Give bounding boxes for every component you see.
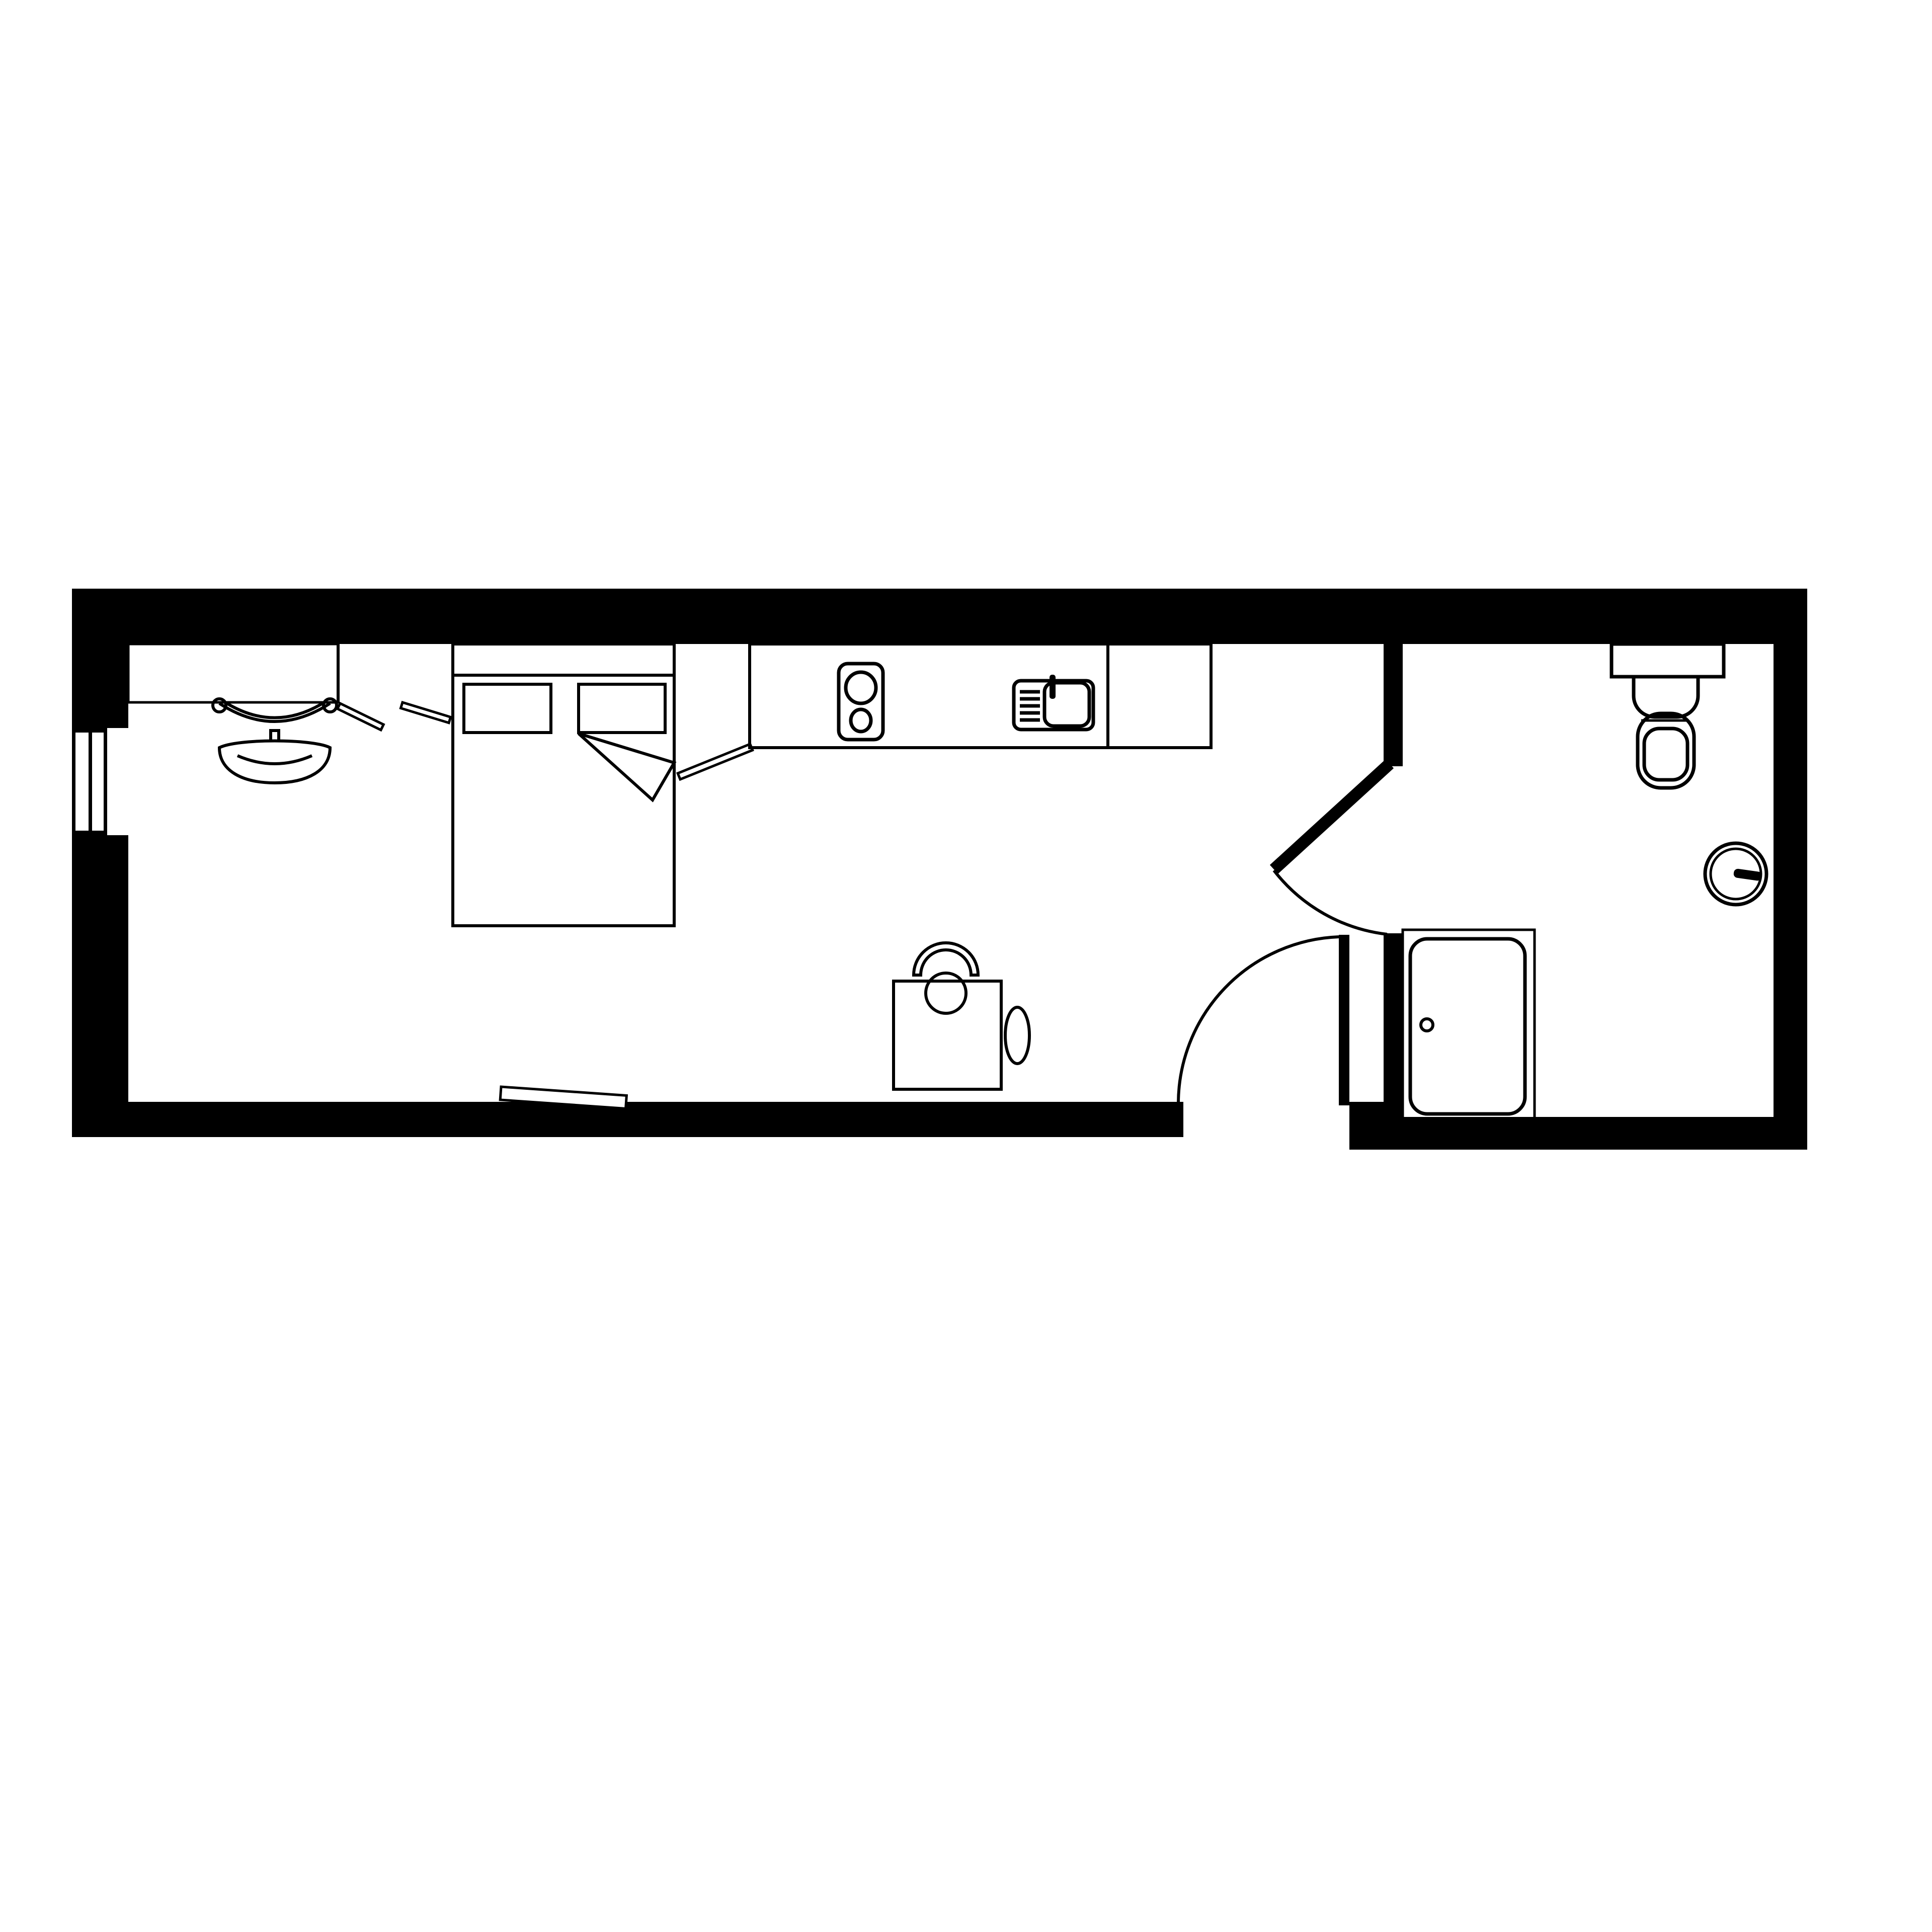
entrance-door: [1178, 935, 1349, 1105]
north-wall: [72, 589, 1807, 644]
hob-burner-small: [851, 709, 871, 732]
hob-burner-large: [846, 672, 876, 703]
entrance-door-swing-arc: [1178, 937, 1339, 1103]
bathroom-door-leaf: [1274, 764, 1390, 869]
window-frame-mid: [89, 728, 92, 835]
dining-chair-seat: [926, 973, 966, 1013]
window-frame-outer: [72, 728, 75, 835]
entrance-door-leaf: [1339, 935, 1349, 1105]
window-frame-inner: [104, 728, 107, 835]
west-wall-lower: [72, 835, 128, 1137]
dining-set: [894, 943, 1029, 1089]
double-bed: [453, 644, 674, 926]
bathroom-fixtures: [1403, 644, 1766, 1121]
desk: [128, 644, 338, 702]
floor-plan-canvas: [0, 0, 1932, 1932]
east-wall: [1774, 589, 1807, 1150]
vestibule-wall: [1384, 933, 1403, 1150]
toilet-base: [1634, 677, 1698, 717]
wall-clock: [1705, 843, 1766, 905]
kitchen: [750, 644, 1211, 748]
bathroom-door-swing-arc: [1274, 870, 1387, 934]
sink-tap: [1050, 675, 1056, 699]
shower-tray: [1410, 939, 1525, 1114]
wardrobe-door-left: [338, 703, 384, 730]
cabinet-flap: [678, 744, 753, 779]
west-window: [72, 728, 107, 835]
dining-chair-back: [914, 943, 978, 975]
desk-chair: [213, 699, 337, 783]
walls: [72, 589, 1807, 1150]
pillow-left: [464, 684, 551, 733]
shower-enclosure: [1403, 930, 1535, 1121]
toilet: [1612, 644, 1724, 788]
door-stub-wall: [1384, 644, 1403, 766]
wardrobe-door-right: [400, 702, 450, 723]
wardrobe: [338, 644, 451, 730]
shower-drain: [1421, 1019, 1433, 1031]
west-wall-upper: [72, 589, 128, 728]
desk-chair-seat: [219, 741, 330, 783]
toilet-bowl-inner: [1644, 729, 1687, 780]
south-wall-studio: [72, 1102, 1183, 1137]
side-stool: [1005, 1007, 1029, 1064]
kitchen-counter: [750, 644, 1211, 748]
bathroom-door: [1274, 764, 1390, 934]
wall-clock-hand: [1733, 868, 1762, 881]
pillow-right: [579, 684, 665, 733]
toilet-cistern: [1612, 644, 1724, 677]
toilet-bowl-outer: [1638, 713, 1694, 788]
blanket-fold: [579, 734, 674, 800]
shower: [1403, 930, 1535, 1121]
sink: [1014, 675, 1093, 730]
